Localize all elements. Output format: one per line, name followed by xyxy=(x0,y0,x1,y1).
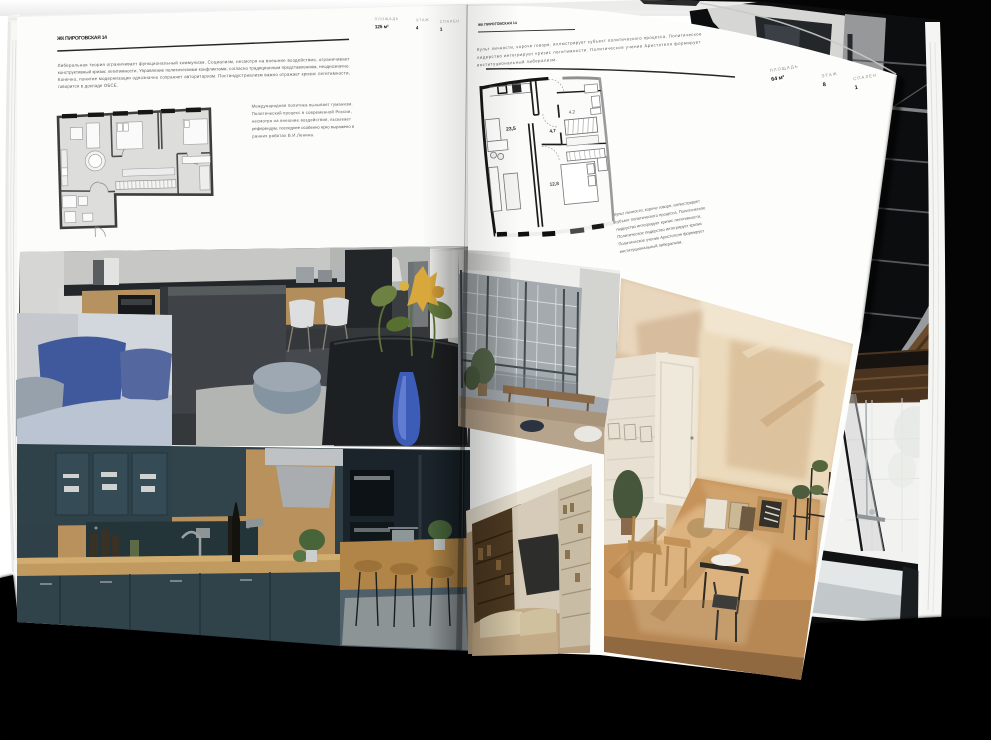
svg-text:4,2: 4,2 xyxy=(568,109,575,115)
svg-text:ПЛОЩАДЬ: ПЛОЩАДЬ xyxy=(375,17,399,22)
svg-text:4,7: 4,7 xyxy=(549,128,556,134)
svg-text:12,8: 12,8 xyxy=(549,181,559,188)
svg-text:ЖК ПИРОГОВСКАЯ 14: ЖК ПИРОГОВСКАЯ 14 xyxy=(56,35,107,42)
svg-text:125 м²: 125 м² xyxy=(375,24,389,29)
